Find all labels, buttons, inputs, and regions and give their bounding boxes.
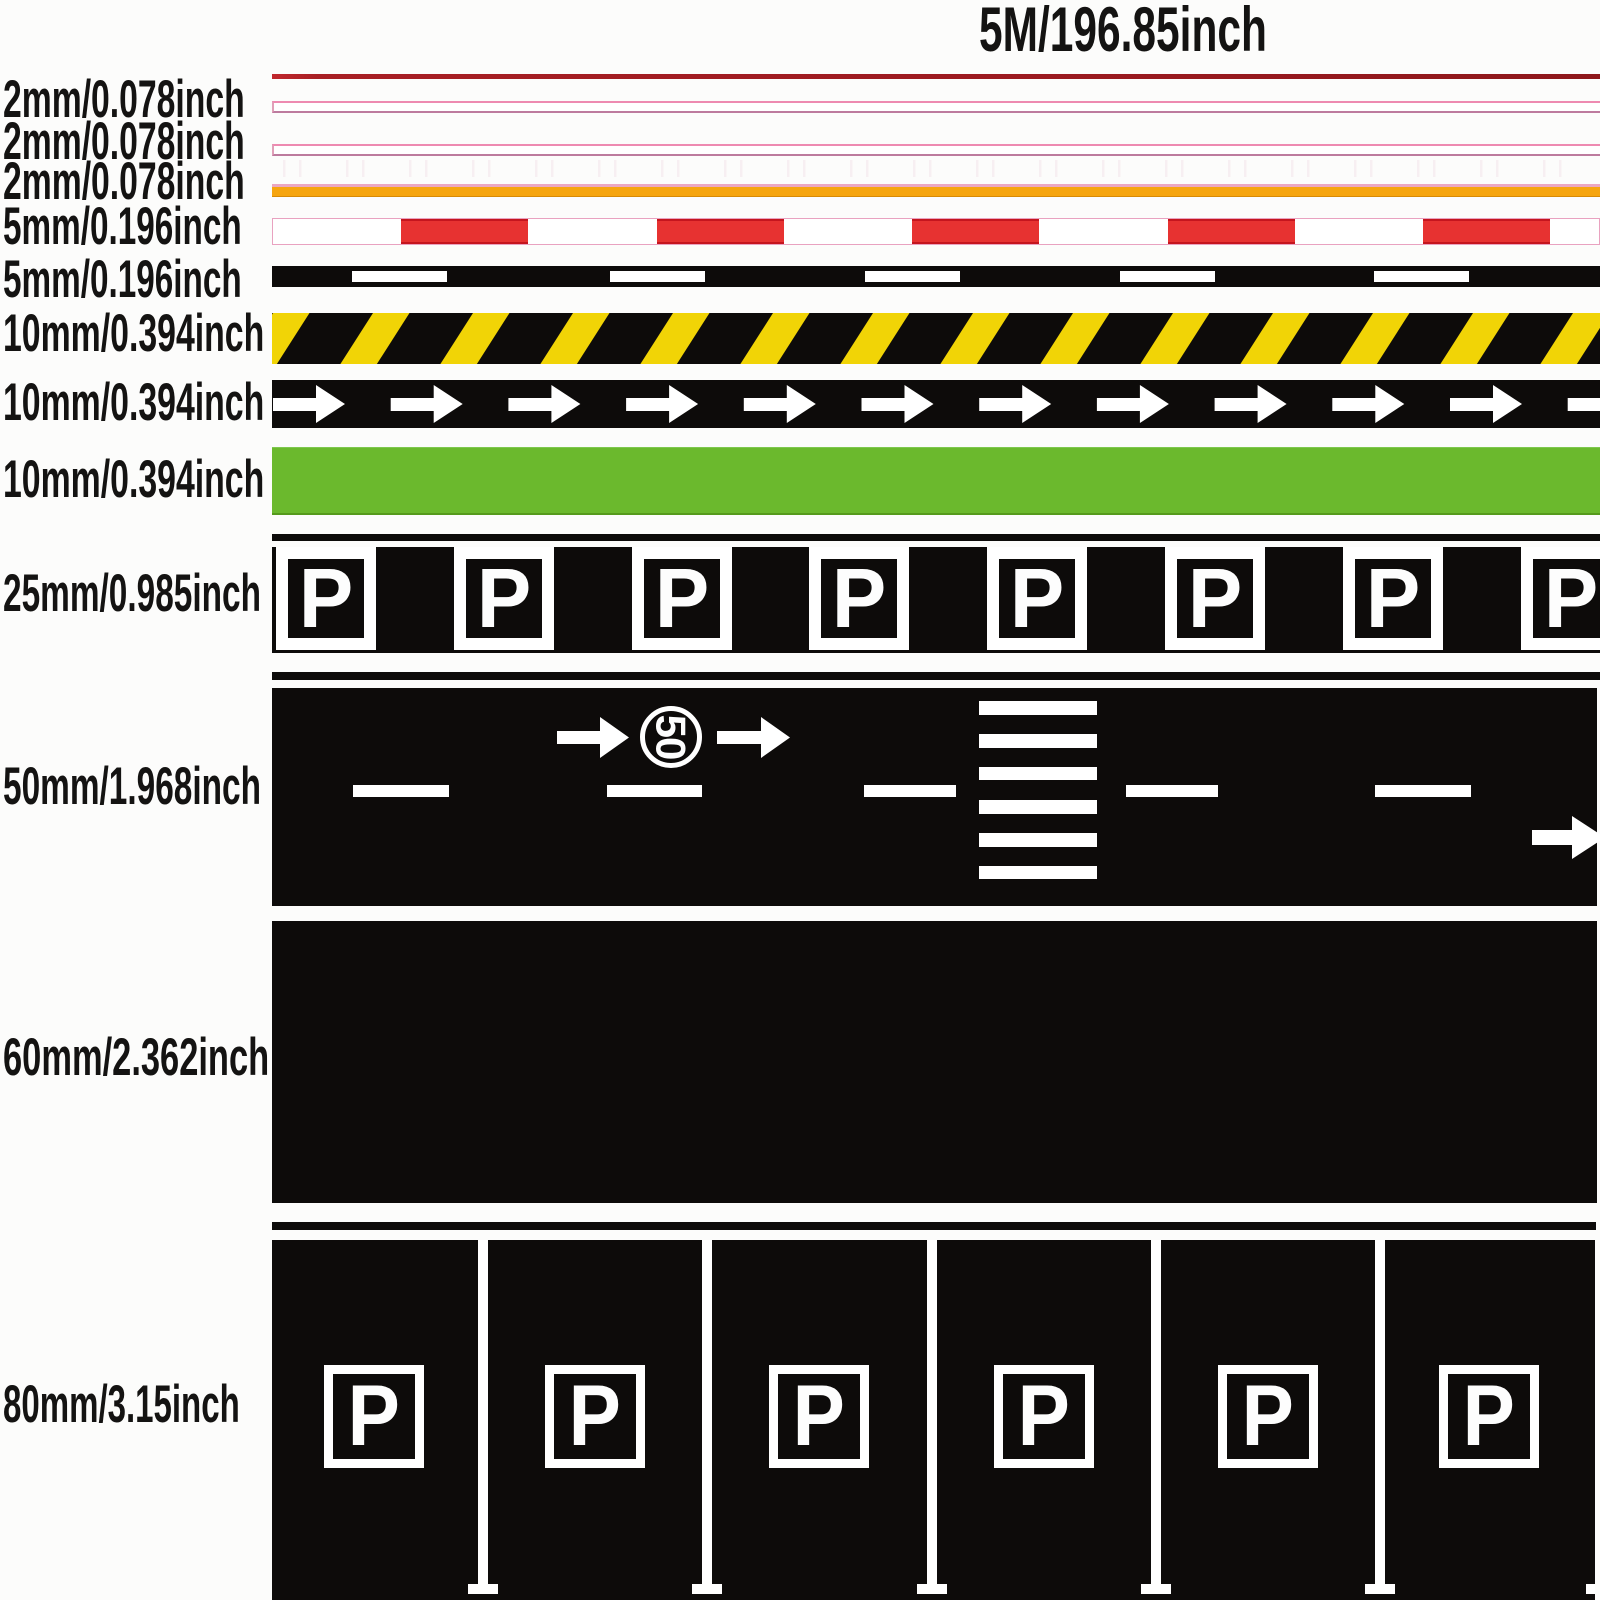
svg-text:50: 50: [648, 715, 695, 760]
